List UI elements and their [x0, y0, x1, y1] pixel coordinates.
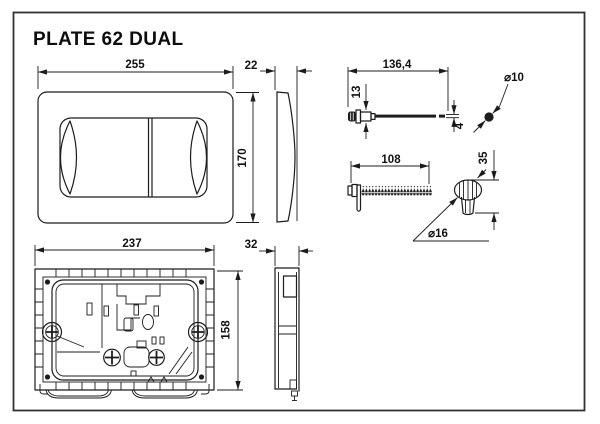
dim-frame-thickness: 32 — [245, 239, 313, 266]
screw-pin — [357, 185, 361, 211]
drawing-title: PLATE 62 DUAL — [33, 29, 184, 50]
corner-screw-dot — [45, 279, 50, 284]
screw-length-label: 108 — [381, 154, 401, 166]
frame-width-label: 237 — [122, 238, 141, 250]
knob-height-label: 35 — [478, 151, 490, 164]
rod-head-height-label: 13 — [351, 86, 363, 99]
frame-side-view — [275, 268, 299, 401]
plate-front-view — [38, 92, 233, 223]
rod-length-label: 136,4 — [383, 59, 412, 71]
corner-screw-dot — [199, 374, 204, 379]
push-rod-view — [348, 110, 445, 123]
plate-thickness-label: 22 — [245, 60, 258, 72]
dim-rod-diameter: 4 — [446, 100, 466, 132]
rod-shaft — [375, 115, 436, 118]
dim-screw-length: 108 — [351, 154, 429, 184]
dim-plate-height: 170 — [236, 93, 259, 223]
rod-knurled-tip — [348, 112, 356, 122]
technical-drawing: PLATE 62 DUAL 255 170 22 — [0, 0, 600, 424]
screw-thread — [361, 186, 432, 195]
ball-diameter-label: ⌀10 — [504, 72, 524, 84]
frame-bottom-clips — [40, 384, 209, 398]
frame-mechanism — [57, 284, 192, 382]
drawing-sheet: PLATE 62 DUAL 255 170 22 — [0, 0, 600, 424]
dim-frame-height: 158 — [217, 271, 243, 390]
corner-screw-dot — [45, 374, 50, 379]
left-boss-screw — [43, 323, 62, 342]
plate-width-label: 255 — [125, 59, 145, 71]
dim-knob-height: 35 — [470, 150, 499, 230]
frame-thickness-label: 32 — [245, 239, 258, 251]
rod-clip — [356, 110, 361, 123]
frame-border-ticks — [35, 269, 214, 390]
rod-diameter-label: 4 — [454, 122, 466, 129]
plate-height-label: 170 — [237, 148, 249, 167]
knob-diameter-label: ⌀16 — [428, 228, 448, 240]
side-upper-box — [284, 276, 297, 297]
rod-ball — [484, 112, 493, 121]
dim-plate-thickness: 22 — [245, 60, 312, 90]
knob-view — [455, 180, 482, 215]
left-button-lens — [61, 121, 77, 194]
ball-detail: ⌀10 — [474, 72, 524, 133]
right-boss-screw — [189, 323, 208, 342]
dim-rod-length: 136,4 — [348, 59, 448, 111]
right-button-lens — [191, 121, 207, 194]
plate-side-view — [277, 66, 297, 222]
dim-plate-width: 255 — [38, 59, 233, 89]
dim-frame-width: 237 — [35, 238, 214, 266]
threaded-rod-view — [348, 185, 432, 212]
corner-screw-dot — [199, 279, 204, 284]
frame-back-view — [35, 269, 214, 398]
frame-height-label: 158 — [221, 320, 233, 340]
